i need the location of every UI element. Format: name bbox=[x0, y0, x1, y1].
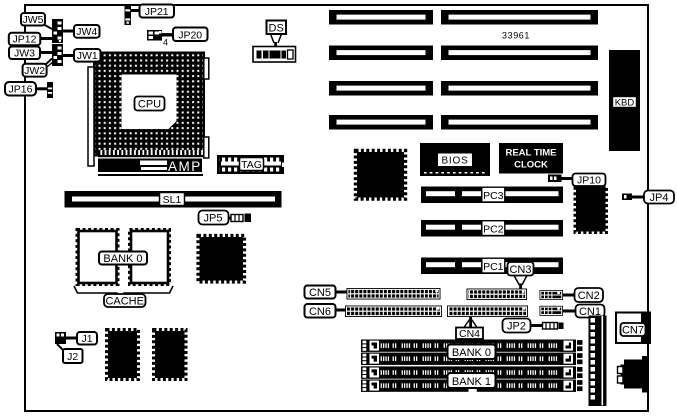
svg-text:TAG: TAG bbox=[241, 159, 262, 171]
svg-text:JW2: JW2 bbox=[24, 65, 45, 77]
svg-text:JW3: JW3 bbox=[14, 48, 35, 60]
svg-text:JW4: JW4 bbox=[76, 26, 97, 38]
svg-text:SL1: SL1 bbox=[163, 194, 182, 206]
svg-text:BANK 0: BANK 0 bbox=[103, 253, 142, 265]
svg-text:J2: J2 bbox=[67, 351, 78, 363]
svg-text:BANK 0: BANK 0 bbox=[452, 347, 491, 359]
svg-text:DS: DS bbox=[269, 23, 284, 35]
svg-text:CLOCK: CLOCK bbox=[514, 160, 548, 171]
svg-text:CN2: CN2 bbox=[578, 290, 600, 302]
svg-text:REAL TIME: REAL TIME bbox=[505, 148, 556, 159]
svg-text:CN4: CN4 bbox=[459, 328, 480, 340]
svg-text:J1: J1 bbox=[81, 333, 92, 345]
svg-text:CN5: CN5 bbox=[309, 287, 331, 299]
svg-text:PC1: PC1 bbox=[483, 261, 504, 273]
svg-text:33961: 33961 bbox=[502, 31, 530, 41]
svg-text:KBD: KBD bbox=[615, 98, 635, 109]
svg-text:CN7: CN7 bbox=[622, 325, 644, 337]
svg-text:BANK 1: BANK 1 bbox=[452, 376, 491, 388]
svg-text:JP4: JP4 bbox=[650, 192, 669, 204]
svg-text:JW5: JW5 bbox=[23, 14, 44, 26]
svg-text:JP21: JP21 bbox=[145, 6, 169, 18]
svg-text:BIOS: BIOS bbox=[441, 155, 468, 166]
svg-text:PC3: PC3 bbox=[483, 190, 504, 202]
svg-text:JP12: JP12 bbox=[13, 34, 37, 46]
svg-text:JP16: JP16 bbox=[9, 84, 33, 96]
svg-text:4: 4 bbox=[163, 38, 168, 48]
svg-text:JP10: JP10 bbox=[577, 175, 601, 187]
svg-text:AMP: AMP bbox=[168, 159, 202, 174]
svg-text:JP2: JP2 bbox=[507, 321, 526, 333]
svg-text:CN6: CN6 bbox=[309, 306, 331, 318]
svg-text:CN3: CN3 bbox=[509, 264, 531, 276]
svg-text:JP5: JP5 bbox=[204, 213, 223, 225]
svg-text:PC2: PC2 bbox=[483, 223, 504, 235]
svg-text:JP20: JP20 bbox=[178, 29, 202, 41]
svg-text:CACHE: CACHE bbox=[105, 296, 144, 308]
svg-text:JW1: JW1 bbox=[77, 50, 98, 62]
svg-text:CPU: CPU bbox=[138, 99, 161, 111]
